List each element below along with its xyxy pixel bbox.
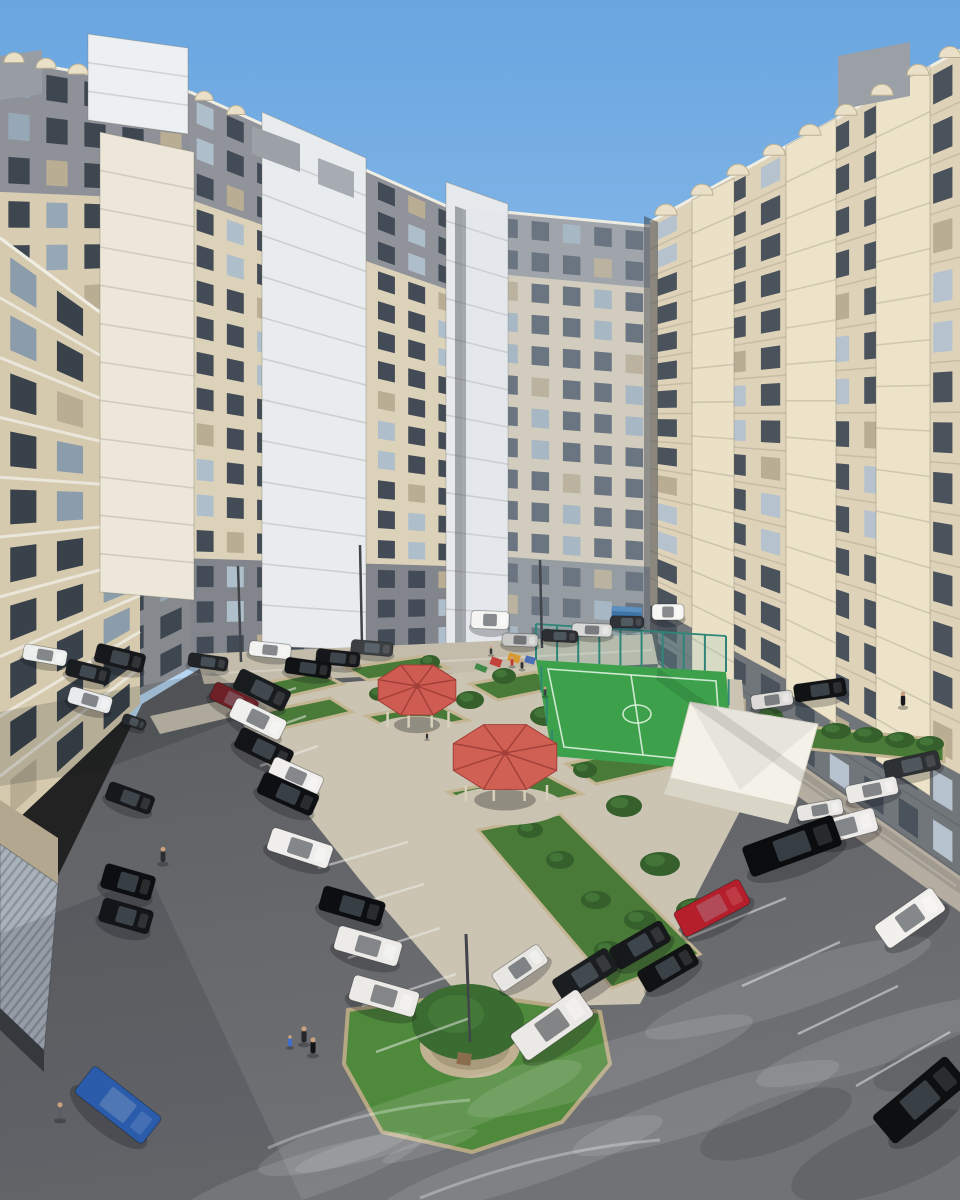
- balcony-stack-right-2: [786, 118, 836, 724]
- building-gaps: [455, 206, 658, 664]
- car: [650, 604, 685, 627]
- gazebo: [446, 725, 564, 826]
- stair-core-left-a: [100, 132, 194, 600]
- car: [608, 616, 646, 634]
- car: [500, 633, 540, 653]
- apartment-courtyard-photo: [0, 0, 960, 1200]
- balcony-stack-right-1: [692, 178, 734, 700]
- roof-tower-left: [88, 34, 188, 134]
- courtyard-scene-svg: [0, 0, 960, 1200]
- balcony-stack-right-3: [876, 66, 930, 796]
- gazebo: [373, 665, 461, 746]
